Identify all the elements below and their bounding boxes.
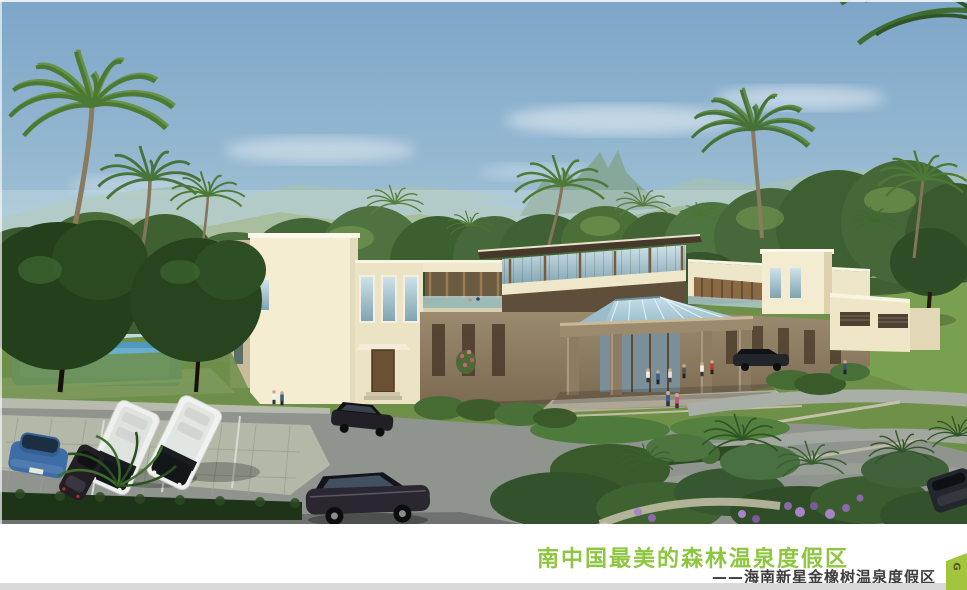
glass-railing bbox=[423, 296, 502, 309]
corner-tab-letter: G bbox=[951, 562, 962, 570]
flowering-bush bbox=[456, 350, 476, 374]
slide: 南中国最美的森林温泉度假区 ——海南新星金橡树温泉度假区 G bbox=[0, 0, 967, 590]
left-edge bbox=[0, 0, 2, 524]
top-edge bbox=[0, 0, 967, 2]
side-door bbox=[372, 350, 394, 392]
door-awning bbox=[356, 344, 410, 350]
footer-strip bbox=[0, 583, 967, 590]
lawn-tree bbox=[890, 228, 967, 296]
rendering-scene bbox=[0, 0, 967, 524]
